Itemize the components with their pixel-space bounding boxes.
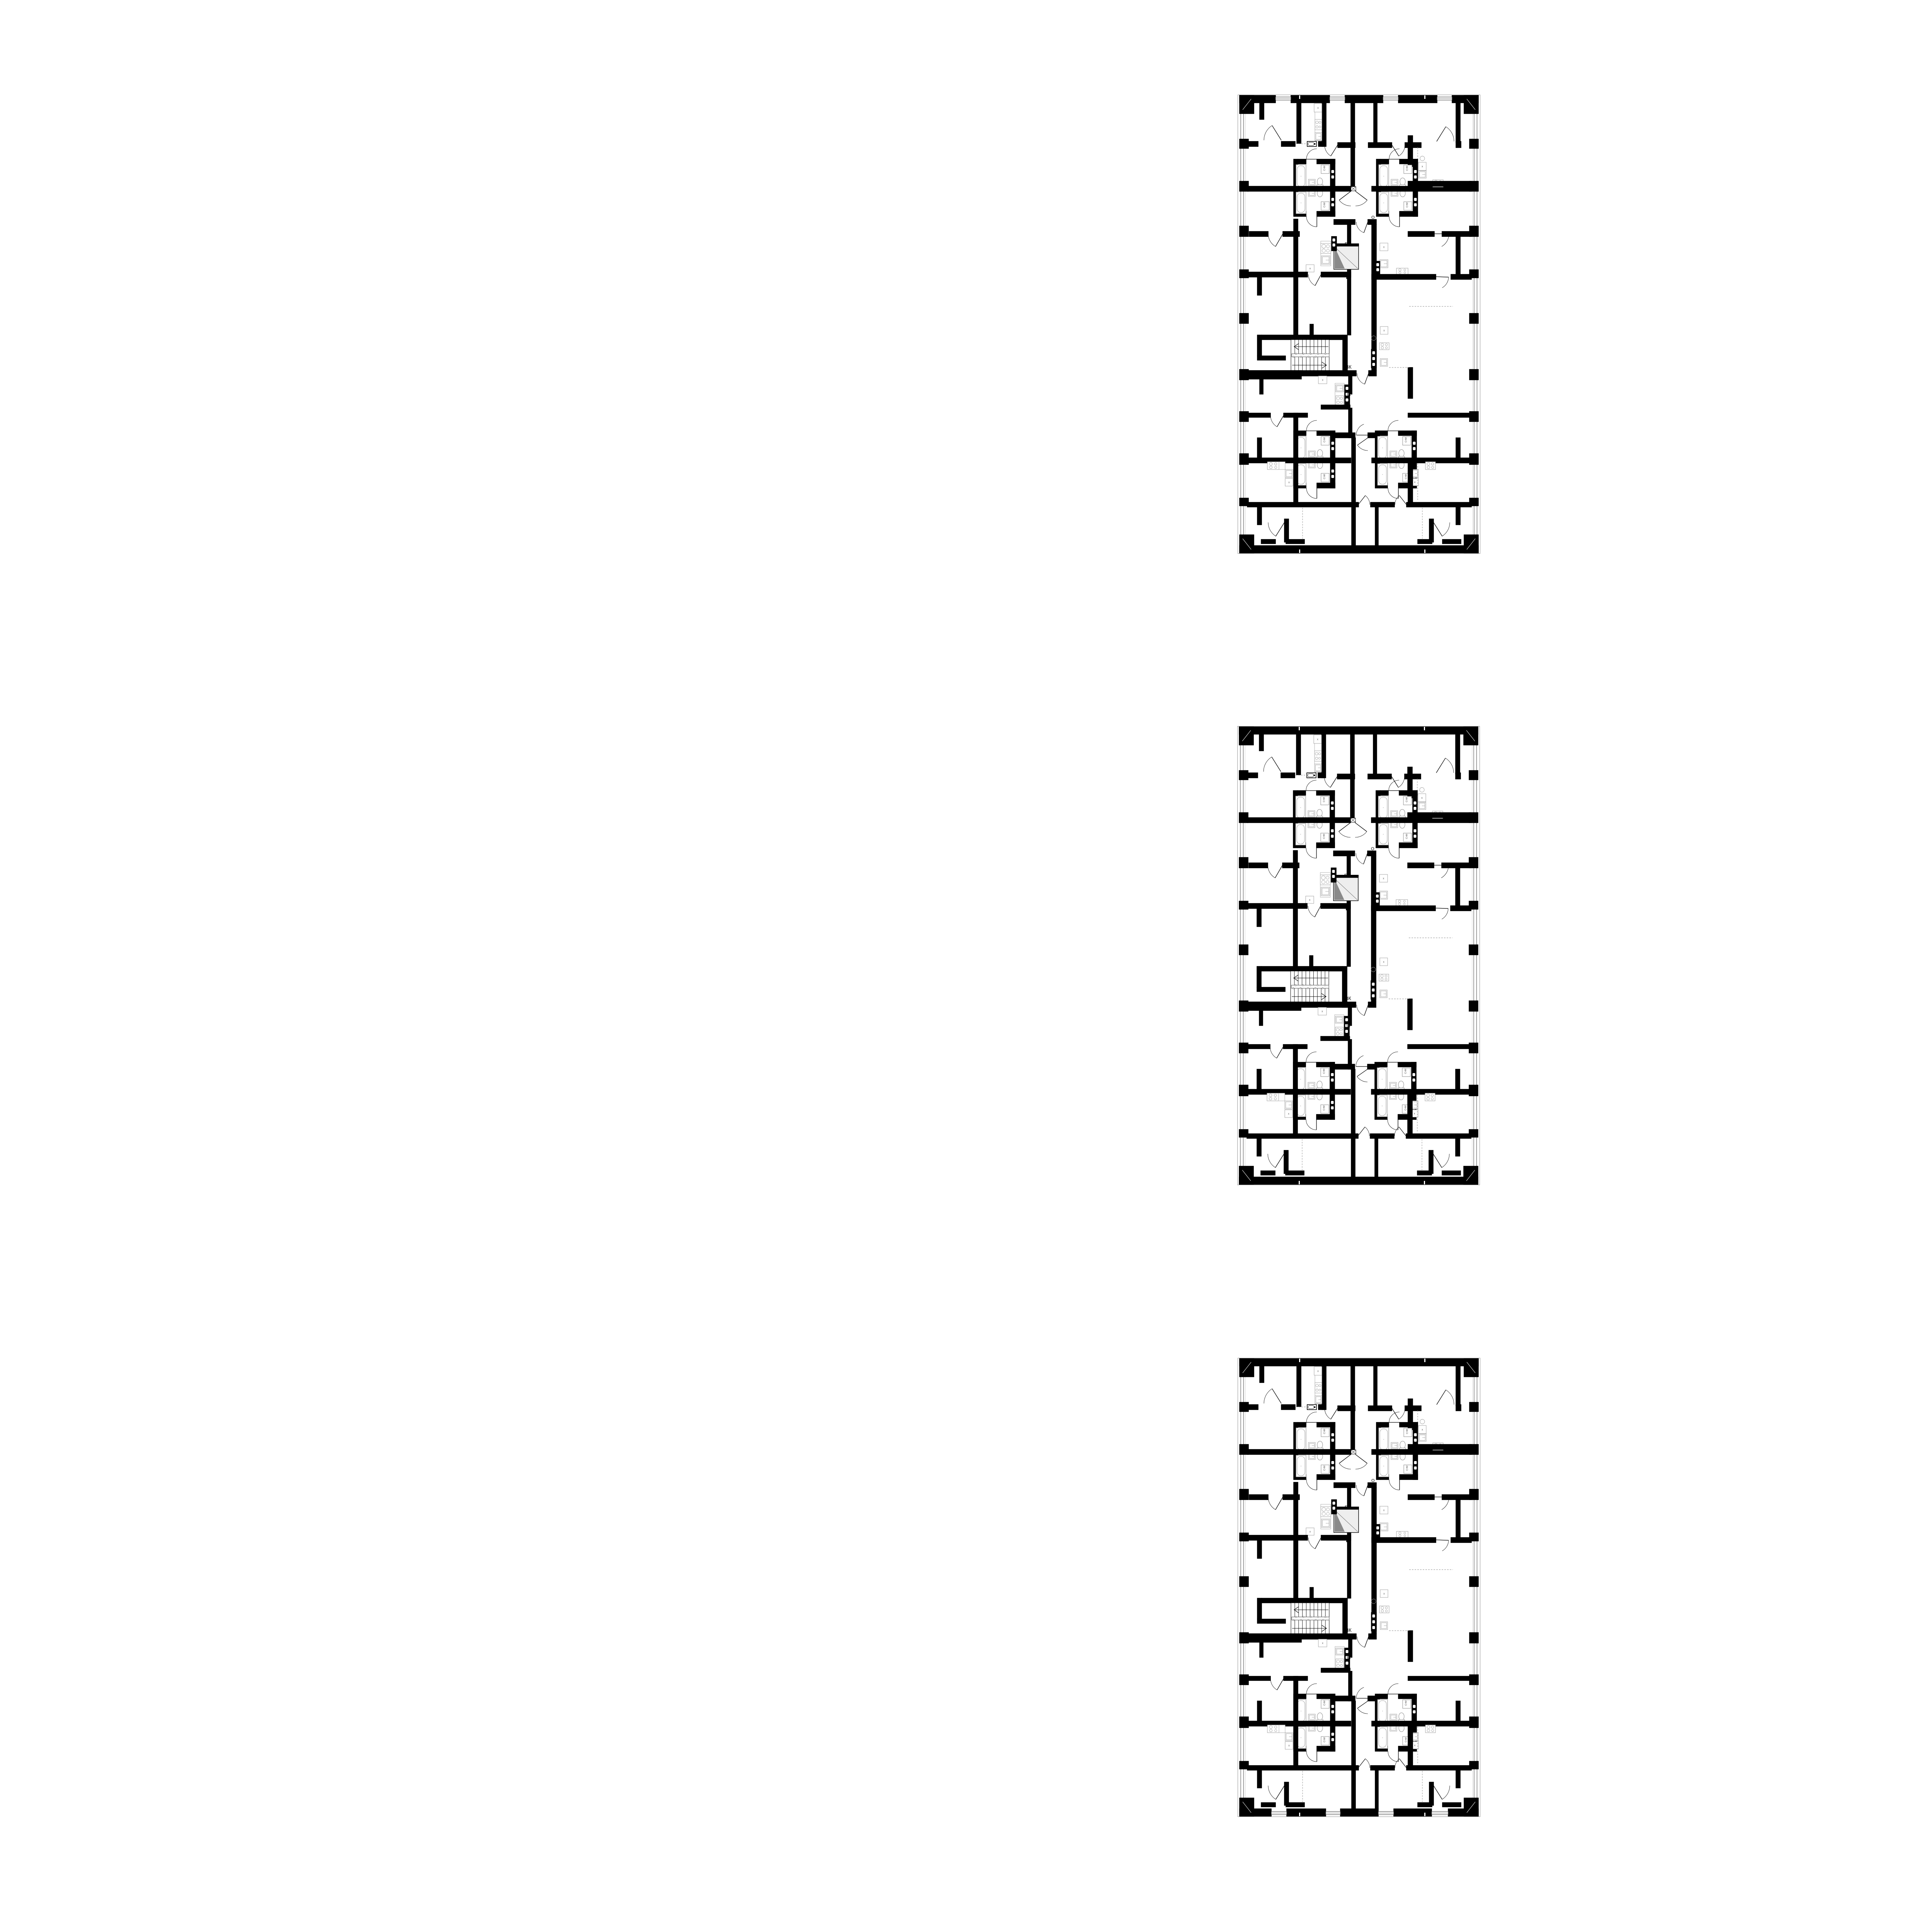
svg-text:СтМ: СтМ [1405,1106,1407,1111]
svg-text:x: x [1322,1642,1323,1645]
svg-text:СтМ: СтМ [1323,1106,1326,1111]
svg-text:СтМ: СтМ [1323,1466,1326,1471]
svg-text:СЭОМ: СЭОМ [1372,250,1376,262]
svg-text:СтМ: СтМ [1405,1737,1408,1742]
svg-text:x: x [1383,961,1384,964]
svg-text:СтМ: СтМ [1323,437,1326,442]
svg-text:СтМ: СтМ [1406,797,1408,802]
svg-text:СтМ: СтМ [1323,166,1326,171]
svg-text:x: x [1317,1370,1319,1373]
svg-text:x: x [1317,738,1318,741]
svg-text:СЭОМ: СЭОМ [1371,882,1376,893]
svg-text:СтМ: СтМ [1323,202,1326,208]
svg-text:x: x [1414,1112,1415,1115]
svg-text:ПК: ПК [1345,391,1351,397]
svg-text:x: x [1414,481,1416,484]
svg-text:ВК: ВК [1345,996,1351,1001]
svg-text:О: О [1371,215,1375,220]
svg-text:СтМ: СтМ [1406,1429,1409,1434]
svg-text:СтМ: СтМ [1323,1429,1326,1434]
svg-text:О: О [1371,1478,1375,1483]
svg-text:x: x [1422,1429,1423,1431]
svg-text:СтМ: СтМ [1406,834,1408,839]
svg-text:СтМ: СтМ [1406,1466,1409,1471]
svg-text:x: x [1414,1744,1416,1747]
svg-text:x: x [1383,1593,1385,1596]
svg-text:x: x [1321,1010,1323,1013]
svg-text:x: x [1310,267,1311,270]
svg-text:x: x [1288,481,1290,484]
svg-text:СтМ: СтМ [1323,1737,1326,1742]
svg-text:ПК: ПК [1345,1655,1351,1660]
svg-text:x: x [1288,1113,1289,1116]
svg-text:СтМ: СтМ [1406,166,1409,171]
svg-text:x: x [1322,379,1323,382]
svg-text:СтМ: СтМ [1323,1069,1326,1074]
svg-text:СтМ: СтМ [1323,834,1326,839]
svg-text:x: x [1383,878,1384,880]
svg-text:СтМ: СтМ [1405,1069,1407,1074]
svg-text:ПК: ПК [1344,873,1350,878]
svg-text:x: x [1309,899,1311,902]
svg-text:СтМ: СтМ [1323,1701,1326,1706]
svg-text:x: x [1288,1745,1290,1747]
svg-text:СтМ: СтМ [1406,202,1409,208]
svg-text:СЭОМ: СЭОМ [1372,1514,1376,1525]
svg-text:x: x [1383,246,1385,249]
svg-text:ПК: ПК [1344,1023,1350,1028]
svg-text:ВК: ВК [1345,1628,1352,1633]
svg-text:СтМ: СтМ [1405,474,1408,479]
svg-text:ПК: ПК [1345,242,1351,247]
svg-text:ВК: ВК [1345,364,1352,370]
svg-text:СтМ: СтМ [1405,1701,1408,1706]
svg-text:СтМ: СтМ [1323,797,1326,802]
svg-text:x: x [1383,1509,1385,1512]
svg-text:x: x [1421,797,1423,799]
svg-text:x: x [1383,330,1385,332]
svg-text:СтМ: СтМ [1323,474,1326,479]
svg-text:СтМ: СтМ [1405,437,1408,442]
svg-text:О: О [1371,847,1374,851]
svg-text:ПК: ПК [1345,1505,1351,1510]
svg-text:x: x [1310,1531,1311,1533]
svg-text:x: x [1317,107,1319,110]
svg-text:x: x [1422,165,1423,168]
